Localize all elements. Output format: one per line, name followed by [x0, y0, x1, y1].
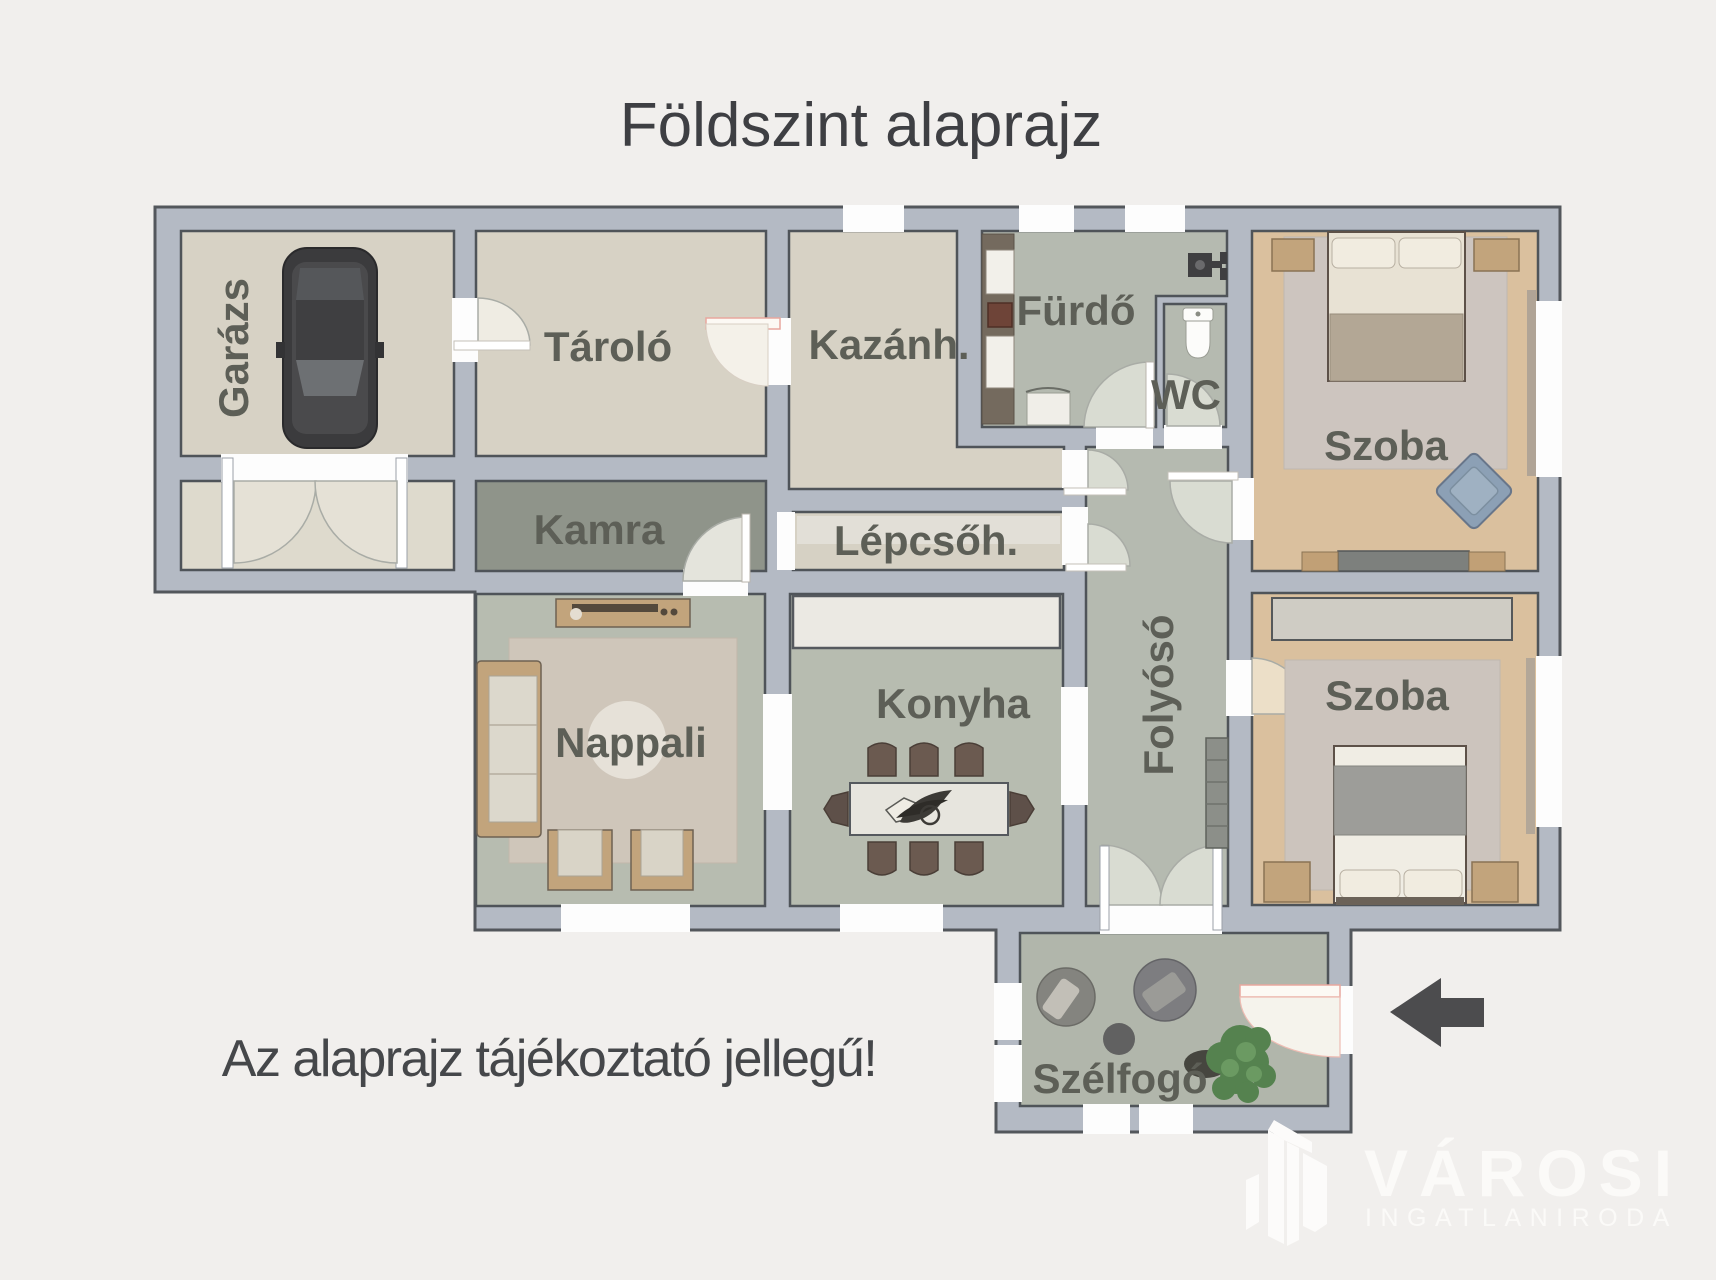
svg-text:Folyósó: Folyósó: [1135, 614, 1182, 775]
svg-text:INGATLANIRODA: INGATLANIRODA: [1365, 1204, 1678, 1232]
svg-text:Az alaprajz tájékoztató jelleg: Az alaprajz tájékoztató jellegű!: [222, 1030, 876, 1088]
svg-text:Kazánh.: Kazánh.: [808, 321, 969, 368]
svg-text:Garázs: Garázs: [210, 278, 257, 418]
svg-text:Tároló: Tároló: [544, 323, 672, 370]
svg-text:Földszint alaprajz: Földszint alaprajz: [620, 91, 1102, 160]
svg-text:VÁROSI: VÁROSI: [1364, 1136, 1683, 1210]
svg-text:Nappali: Nappali: [555, 719, 707, 766]
svg-text:Szoba: Szoba: [1324, 422, 1448, 469]
svg-text:WC: WC: [1151, 371, 1221, 418]
svg-text:Szélfogó: Szélfogó: [1033, 1055, 1208, 1102]
svg-text:Szoba: Szoba: [1325, 672, 1449, 719]
svg-text:Fürdő: Fürdő: [1017, 287, 1136, 334]
svg-text:Konyha: Konyha: [876, 680, 1031, 727]
svg-text:Lépcsőh.: Lépcsőh.: [834, 517, 1018, 564]
svg-text:Kamra: Kamra: [534, 506, 665, 553]
